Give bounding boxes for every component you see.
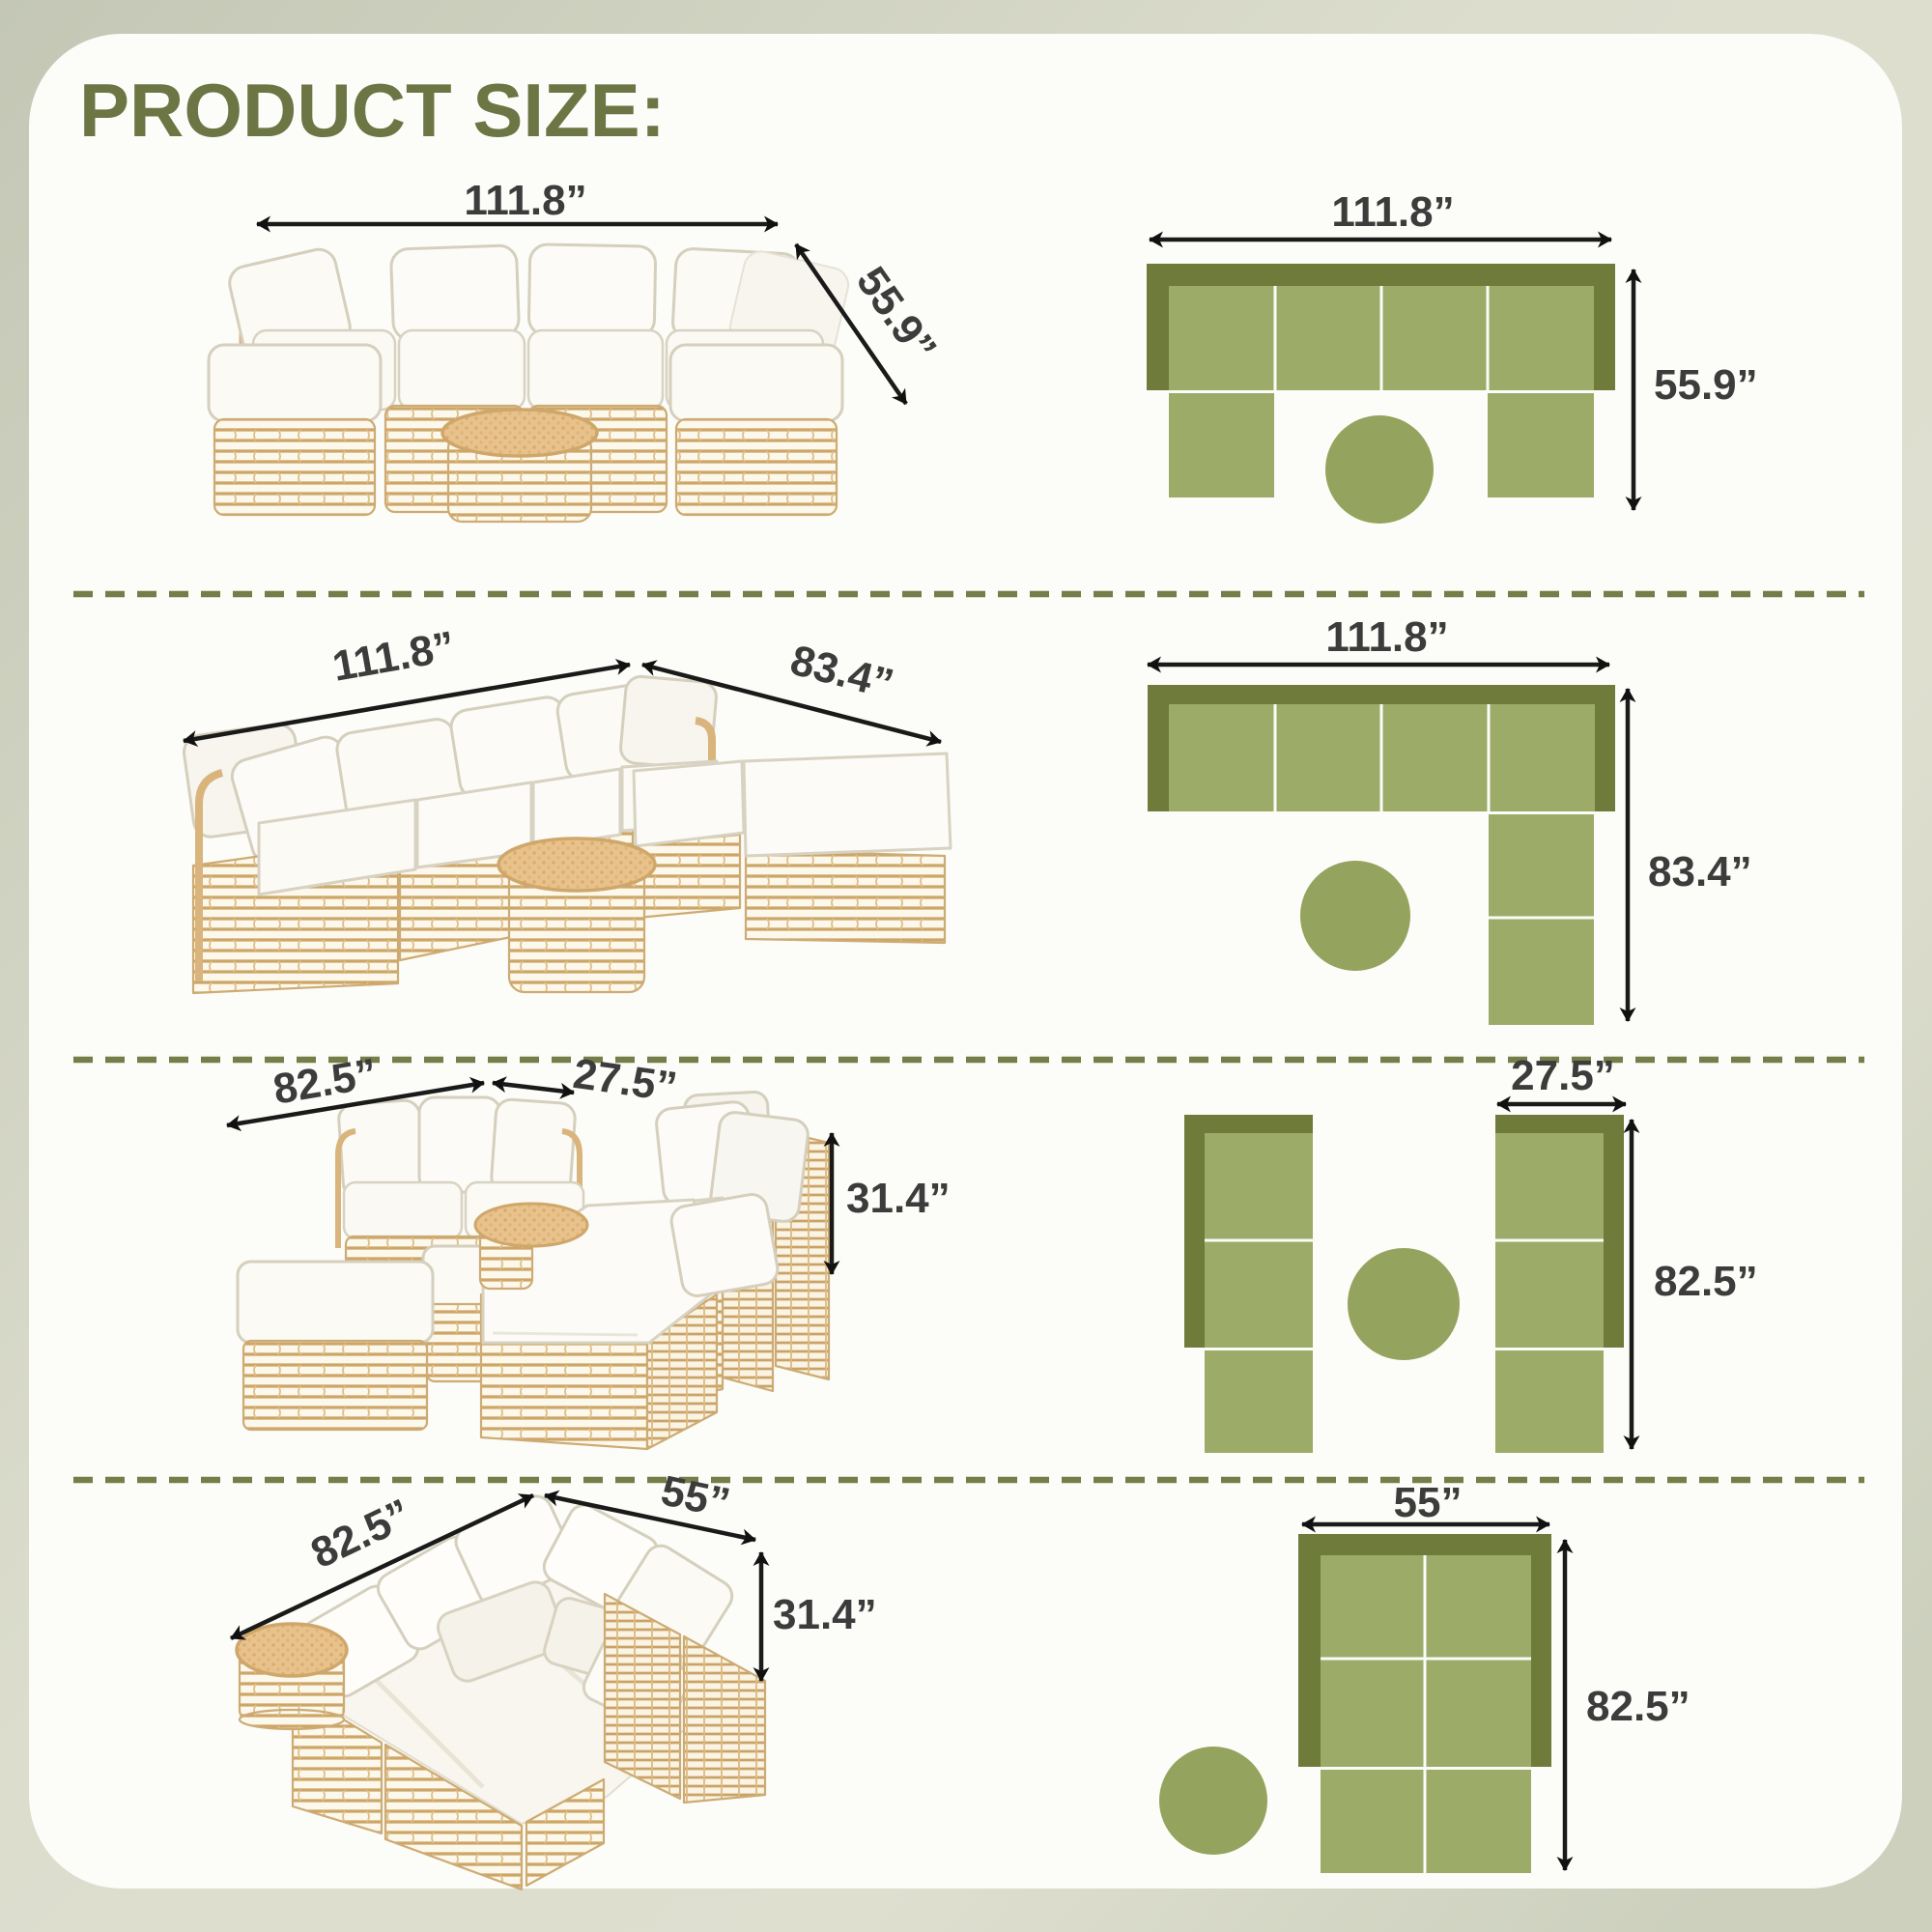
- svg-text:31.4”: 31.4”: [846, 1175, 951, 1222]
- svg-text:27.5”: 27.5”: [1511, 1052, 1615, 1099]
- svg-text:111.8”: 111.8”: [464, 177, 586, 224]
- svg-text:31.4”: 31.4”: [773, 1591, 877, 1638]
- svg-text:PRODUCT SIZE:: PRODUCT SIZE:: [79, 68, 666, 153]
- svg-text:55.9”: 55.9”: [1654, 361, 1758, 409]
- svg-text:82.5”: 82.5”: [1586, 1683, 1690, 1730]
- svg-text:82.5”: 82.5”: [1654, 1258, 1758, 1305]
- svg-text:55”: 55”: [1394, 1479, 1463, 1526]
- svg-text:111.8”: 111.8”: [1331, 188, 1454, 236]
- svg-text:111.8”: 111.8”: [1325, 613, 1448, 661]
- svg-text:83.4”: 83.4”: [1648, 848, 1752, 895]
